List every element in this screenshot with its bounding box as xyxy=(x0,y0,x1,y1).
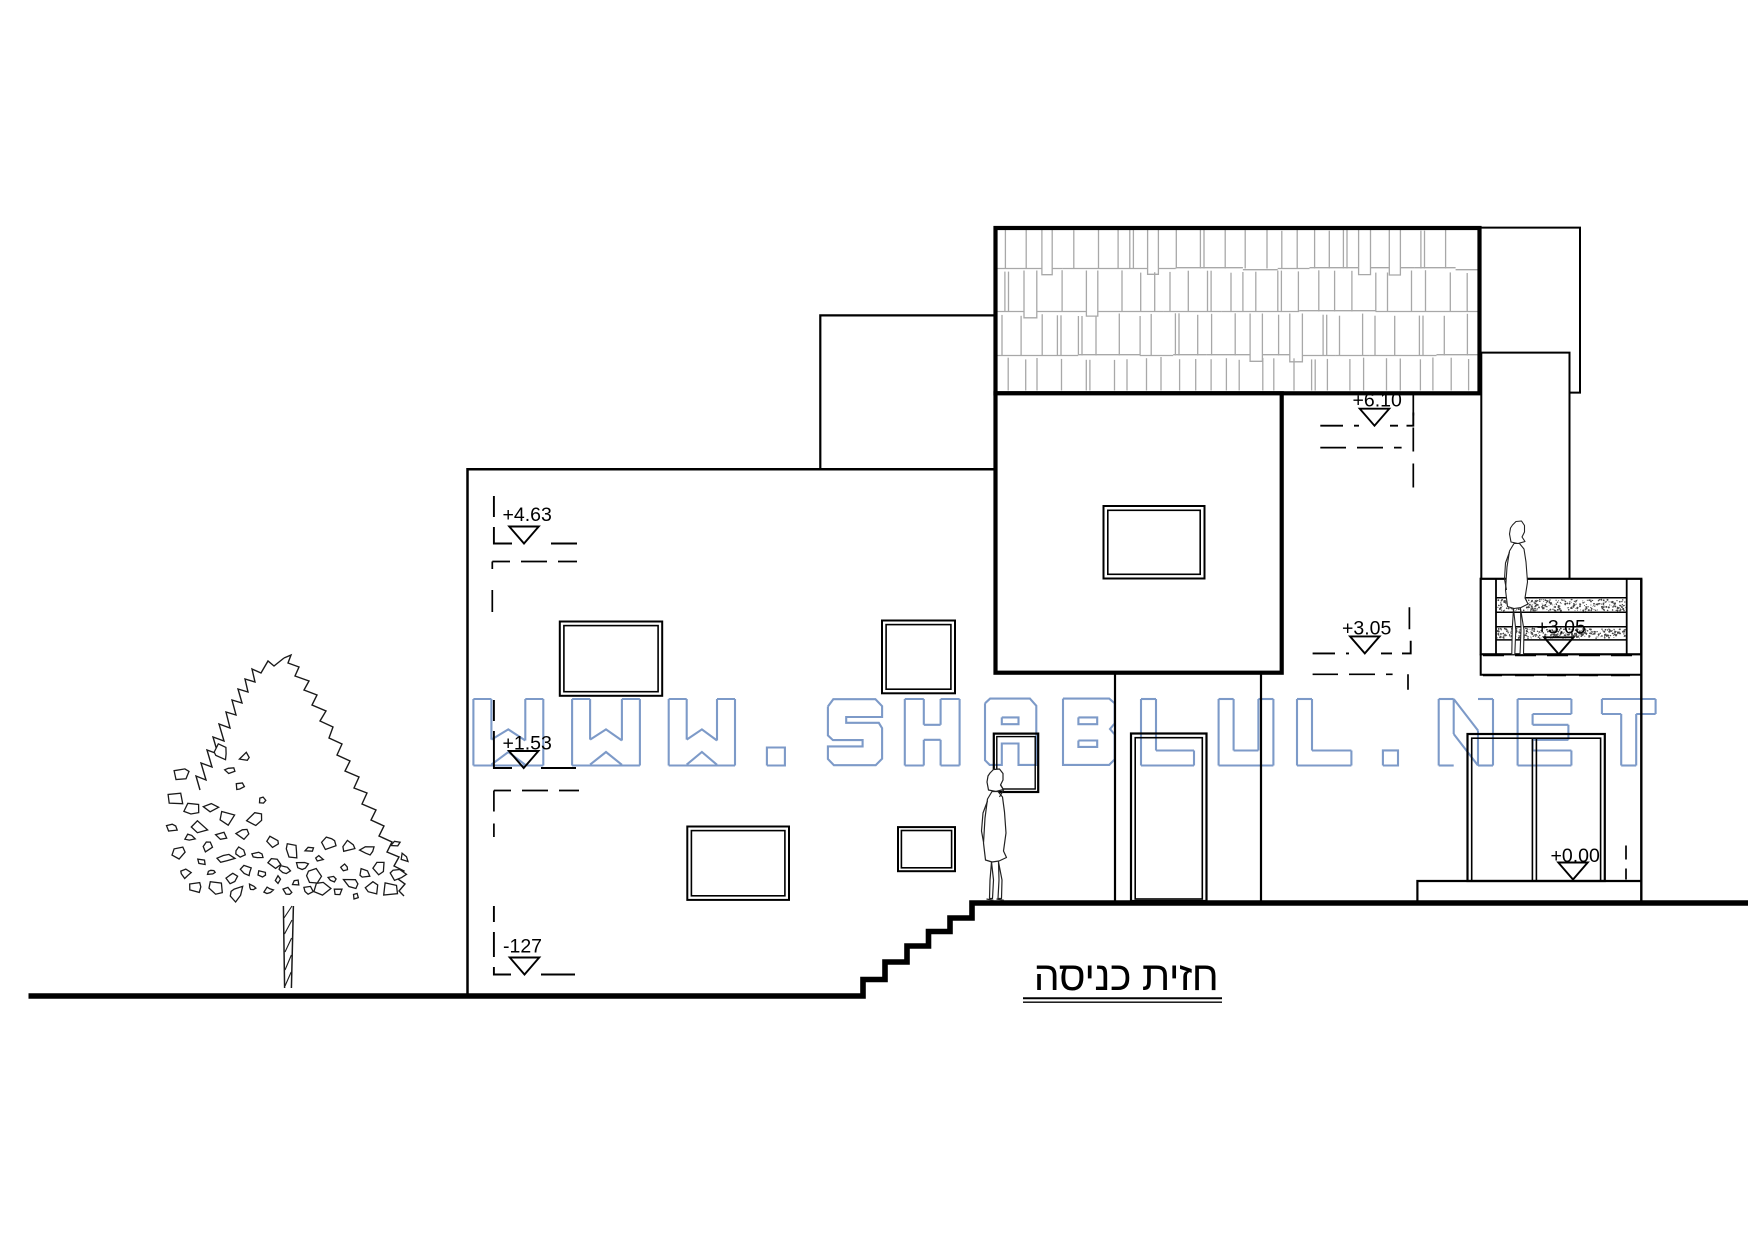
svg-text:-127: -127 xyxy=(503,936,542,958)
svg-text:חזית כניסה: חזית כניסה xyxy=(1034,953,1219,999)
svg-text:+6.10: +6.10 xyxy=(1353,390,1402,412)
svg-text:+0.00: +0.00 xyxy=(1551,845,1600,867)
svg-text:+1.53: +1.53 xyxy=(503,733,552,755)
svg-text:+4.63: +4.63 xyxy=(503,504,552,526)
svg-text:+3.05: +3.05 xyxy=(1537,617,1586,639)
svg-text:+3.05: +3.05 xyxy=(1342,618,1391,640)
